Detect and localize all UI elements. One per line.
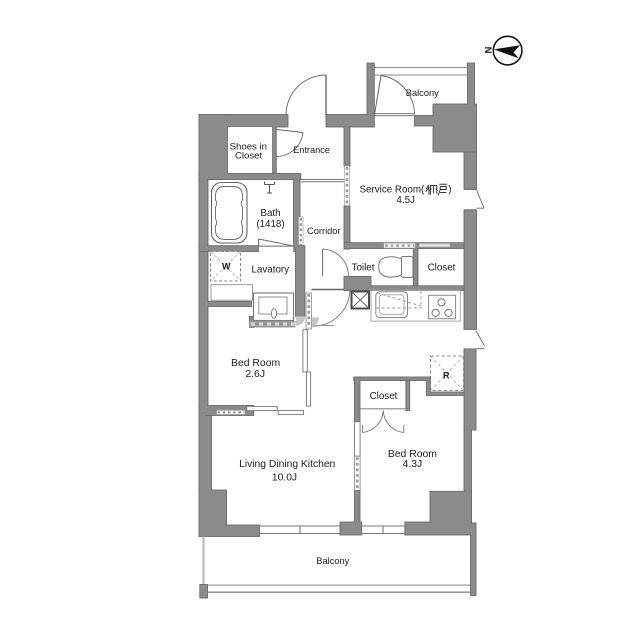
svg-text:Balcony: Balcony [406,88,439,98]
svg-text:4.3J: 4.3J [403,459,423,470]
svg-text:(1418): (1418) [256,219,284,230]
svg-text:Balcony: Balcony [316,556,349,566]
svg-text:Bed Room: Bed Room [231,358,280,369]
svg-text:Bath: Bath [260,208,280,219]
svg-text:Closet: Closet [235,151,263,162]
svg-text:Living Dining Kitchen: Living Dining Kitchen [239,459,335,470]
svg-text:Corridor: Corridor [307,226,341,236]
svg-text:W: W [222,262,231,272]
svg-text:R: R [443,371,450,381]
svg-text:2.6J: 2.6J [245,369,265,380]
svg-text:): ) [448,185,451,196]
svg-text:10.0J: 10.0J [272,472,297,483]
svg-text:Lavatory: Lavatory [252,265,290,276]
svg-text:Toilet: Toilet [352,262,375,273]
svg-text:Closet: Closet [370,391,398,402]
svg-text:Entrance: Entrance [293,145,330,155]
svg-text:4.5J: 4.5J [396,195,415,206]
svg-text:N: N [484,46,495,53]
svg-text:Service Room(: Service Room( [360,185,426,196]
svg-text:Closet: Closet [428,262,456,273]
